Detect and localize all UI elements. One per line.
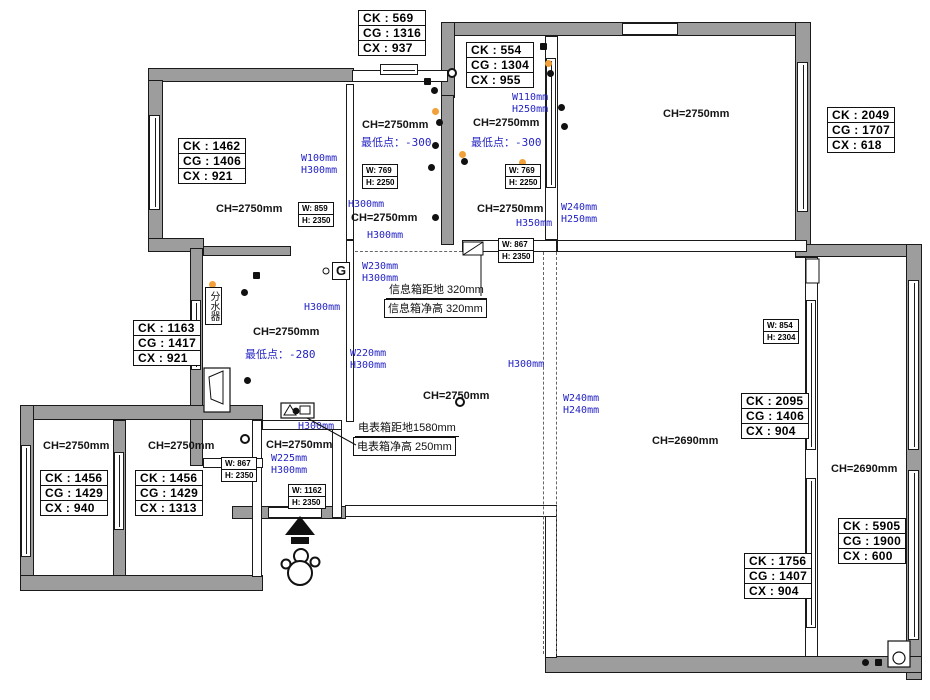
measure-ck: CK : 1456 [135,470,203,486]
ceiling-dashed-line [556,252,557,654]
ceiling-height-label: CH=2750mm [148,440,214,452]
measure-box: CK : 2049 CG : 1707 CX : 618 [827,107,895,153]
partition-wall [345,505,557,517]
downlight-icon [431,87,438,94]
downlight-icon [428,164,435,171]
downlight-icon [432,214,439,221]
window-dim-box: W: 769 H: 2250 [362,164,398,189]
partition-wall [332,420,342,518]
lowest-point-label: 最低点：-280 [245,348,316,361]
meter-box-clear-note: 电表箱净高 250mm [353,437,456,456]
measure-ck: CK : 554 [466,42,534,58]
dimension-label: H300mm [304,302,340,314]
window-icon [546,58,556,188]
socket-icon [540,43,547,50]
person-icon [282,549,320,585]
measure-box: CK : 554 CG : 1304 CX : 955 [466,42,534,88]
socket-icon [253,272,260,279]
measure-box: CK : 1456 CG : 1429 CX : 940 [40,470,108,516]
downlight-icon [461,158,468,165]
spotlight-icon [459,151,466,158]
measure-box: CK : 5905 CG : 1900 CX : 600 [838,518,906,564]
ceiling-height-label: CH=2750mm [362,119,428,131]
drain-icon [447,68,457,78]
ceiling-height-label: CH=2690mm [652,435,718,447]
gas-meter-icon [323,268,329,274]
downlight-icon [241,289,248,296]
window-dim-h: H: 2250 [505,176,541,189]
dimension-label: H300mm [367,230,403,242]
measure-cg: CG : 1429 [135,485,203,501]
dimension-label: H350mm [516,218,552,230]
wall-segment [148,68,354,82]
dimension-label: W240mm H250mm [561,202,597,226]
downlight-icon [432,142,439,149]
socket-icon [875,659,882,666]
meter-box-icon [281,403,314,418]
measure-ck: CK : 2095 [741,393,809,409]
ceiling-height-label: CH=2750mm [266,439,332,451]
measure-box: CK : 569 CG : 1316 CX : 937 [358,10,426,56]
window-dim-h: H: 2350 [288,496,326,509]
dimension-label: W220mm H300mm [350,348,386,372]
measure-cg: CG : 1406 [741,408,809,424]
measure-cx: CX : 937 [358,40,426,56]
measure-cx: CX : 921 [133,350,201,366]
gas-meter-label: G [332,262,350,280]
measure-ck: CK : 569 [358,10,426,26]
measure-cg: CG : 1407 [744,568,812,584]
downlight-icon [244,377,251,384]
measure-cx: CX : 600 [838,548,906,564]
measure-ck: CK : 1462 [178,138,246,154]
dimension-label: H300mm [348,199,384,211]
wall-segment [441,95,454,245]
measure-ck: CK : 1456 [40,470,108,486]
ceiling-height-label: CH=2750mm [663,108,729,120]
measure-cg: CG : 1707 [827,122,895,138]
socket-icon [424,78,431,85]
window-icon [114,452,124,530]
window-dim-h: H: 2350 [498,250,534,263]
measure-box: CK : 1756 CG : 1407 CX : 904 [744,553,812,599]
wall-segment [20,405,263,420]
ceiling-height-label: CH=2750mm [253,326,319,338]
lowest-point-label: 最低点：-300 [361,136,432,149]
window-dim-h: H: 2350 [298,214,334,227]
measure-cx: CX : 955 [466,72,534,88]
spotlight-icon [432,108,439,115]
wall-segment [20,575,263,591]
partition-wall [557,240,807,252]
measure-cx: CX : 618 [827,137,895,153]
ceiling-dashed-line [543,252,544,654]
measure-cx: CX : 940 [40,500,108,516]
downlight-icon [862,659,869,666]
info-box-height-note: 信息箱距地 320mm [386,281,487,299]
door-opening [622,23,678,35]
window-icon [149,115,160,210]
measure-cx: CX : 921 [178,168,246,184]
partition-wall [252,420,262,577]
window-dim-h: H: 2250 [362,176,398,189]
dimension-label: W100mm H300mm [301,153,337,177]
downlight-icon [558,104,565,111]
dimension-label: H300mm [508,359,544,371]
ceiling-dashed-line [355,251,462,252]
measure-ck: CK : 1756 [744,553,812,569]
downlight-icon [561,123,568,130]
measure-cg: CG : 1316 [358,25,426,41]
measure-cg: CG : 1406 [178,153,246,169]
window-dim-box: W: 867 H: 2350 [221,457,257,482]
window-dim-box: W: 854 H: 2304 [763,319,799,344]
window-icon [908,470,919,640]
measure-box: CK : 1456 CG : 1429 CX : 1313 [135,470,203,516]
dimension-label: H300mm [298,421,334,433]
water-manifold-label: 分水器 [205,287,222,325]
measure-ck: CK : 2049 [827,107,895,123]
ceiling-height-label: CH=2750mm [351,212,417,224]
ceiling-height-label: CH=2750mm [216,203,282,215]
window-dim-box: W: 859 H: 2350 [298,202,334,227]
measure-cx: CX : 1313 [135,500,203,516]
ceiling-height-label: CH=2690mm [831,463,897,475]
lowest-point-label: 最低点：-300 [471,136,542,149]
window-dim-box: W: 1162 H: 2350 [288,484,326,509]
downlight-icon [436,119,443,126]
window-icon [797,62,808,212]
drain-icon [240,434,250,444]
window-icon [380,64,418,75]
measure-ck: CK : 5905 [838,518,906,534]
window-dim-box: W: 867 H: 2350 [498,238,534,263]
wall-segment [441,22,455,98]
drain-icon [455,397,465,407]
window-icon [21,445,31,557]
measure-box: CK : 1163 CG : 1417 CX : 921 [133,320,201,366]
window-dim-h: H: 2350 [221,469,257,482]
window-icon [908,280,919,450]
spotlight-icon [209,369,216,376]
wall-segment [795,244,922,257]
measure-box: CK : 1462 CG : 1406 CX : 921 [178,138,246,184]
dimension-label: W240mm H240mm [563,393,599,417]
window-dim-h: H: 2304 [763,331,799,344]
measure-cg: CG : 1417 [133,335,201,351]
measure-cx: CX : 904 [741,423,809,439]
info-box-clear-note: 信息箱净高 320mm [384,299,487,318]
measure-cg: CG : 1900 [838,533,906,549]
wall-segment [203,246,291,256]
measure-box: CK : 2095 CG : 1406 CX : 904 [741,393,809,439]
ceiling-height-label: CH=2750mm [43,440,109,452]
floor-plan: CH=2750mm CH=2750mm CH=2750mm CH=2750mm … [0,0,930,700]
meter-box-height-note: 电表箱距地1580mm [355,419,459,437]
dimension-label: W225mm H300mm [271,453,307,477]
ceiling-height-label: CH=2750mm [473,117,539,129]
window-dim-box: W: 769 H: 2250 [505,164,541,189]
measure-cg: CG : 1304 [466,57,534,73]
measure-cg: CG : 1429 [40,485,108,501]
entrance-arrow-icon [285,516,315,544]
downlight-icon [547,70,554,77]
ceiling-height-label: CH=2750mm [477,203,543,215]
dimension-label: W110mm H250mm [512,92,548,116]
spotlight-icon [545,60,552,67]
measure-cx: CX : 904 [744,583,812,599]
measure-ck: CK : 1163 [133,320,201,336]
